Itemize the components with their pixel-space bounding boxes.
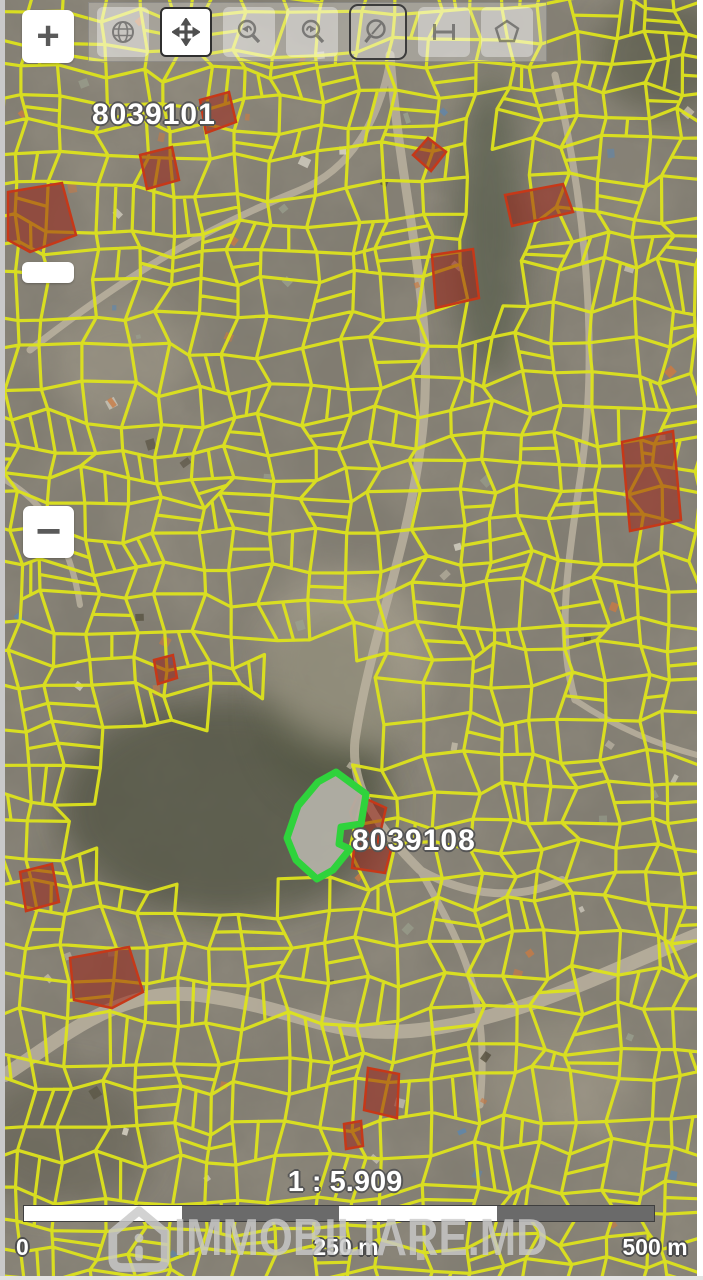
polygon-icon xyxy=(493,18,521,46)
building-roof xyxy=(599,815,607,823)
scale-ratio-text: 1 : 5.909 xyxy=(245,1166,445,1199)
pan-button[interactable] xyxy=(160,7,212,57)
pan-arrows-icon xyxy=(172,18,200,46)
zoom-in-button[interactable]: + xyxy=(22,10,74,63)
measure-area-button[interactable] xyxy=(481,7,533,57)
scale-bar-segment xyxy=(339,1206,497,1221)
red-parcel[interactable] xyxy=(20,864,59,911)
building-roof xyxy=(245,114,250,121)
scale-bar xyxy=(23,1205,655,1222)
building-roof xyxy=(112,305,116,310)
building-roof xyxy=(264,474,272,479)
magnifier-back-icon xyxy=(235,18,263,46)
map-toolbar xyxy=(88,2,547,62)
scale-tick-0: 0 xyxy=(16,1234,29,1261)
red-parcel[interactable] xyxy=(70,947,143,1008)
scale-bar-segment xyxy=(24,1206,182,1221)
cadastral-label: 8039101 xyxy=(92,98,216,132)
cadastral-label: 8039108 xyxy=(352,824,476,858)
magnifier-icon xyxy=(364,18,392,46)
scale-bar-segment xyxy=(182,1206,340,1221)
red-parcel[interactable] xyxy=(344,1121,363,1149)
building-roof xyxy=(135,614,144,621)
red-parcel[interactable] xyxy=(432,249,479,308)
map-canvas xyxy=(5,0,697,1276)
minus-icon: − xyxy=(36,507,62,557)
plus-icon: + xyxy=(36,14,59,59)
map-viewport: 80391018039108 + − 1 : 5.909 0 250 m 500… xyxy=(0,0,703,1280)
page-edge-bottom xyxy=(0,1276,703,1280)
zoom-slider-handle[interactable] xyxy=(22,262,74,283)
red-parcel[interactable] xyxy=(622,431,681,531)
red-parcel[interactable] xyxy=(364,1068,399,1118)
satellite-cadastral-map[interactable]: 80391018039108 xyxy=(5,0,697,1276)
page-edge-right xyxy=(697,0,703,1280)
full-extent-button[interactable] xyxy=(97,7,149,57)
scale-tick-250: 250 m xyxy=(291,1234,401,1261)
building-roof xyxy=(607,149,615,159)
ruler-icon xyxy=(430,18,458,46)
page-edge-left xyxy=(0,0,5,1280)
magnifier-forward-icon xyxy=(298,18,326,46)
scale-bar-segment xyxy=(497,1206,655,1221)
zoom-box-button[interactable] xyxy=(349,4,407,60)
measure-distance-button[interactable] xyxy=(418,7,470,57)
zoom-next-button[interactable] xyxy=(286,7,338,57)
zoom-previous-button[interactable] xyxy=(223,7,275,57)
red-parcel[interactable] xyxy=(154,655,177,684)
scale-tick-500: 500 m xyxy=(605,1234,703,1261)
globe-icon xyxy=(109,18,137,46)
zoom-out-button[interactable]: − xyxy=(23,506,74,558)
red-parcel[interactable] xyxy=(140,147,179,189)
